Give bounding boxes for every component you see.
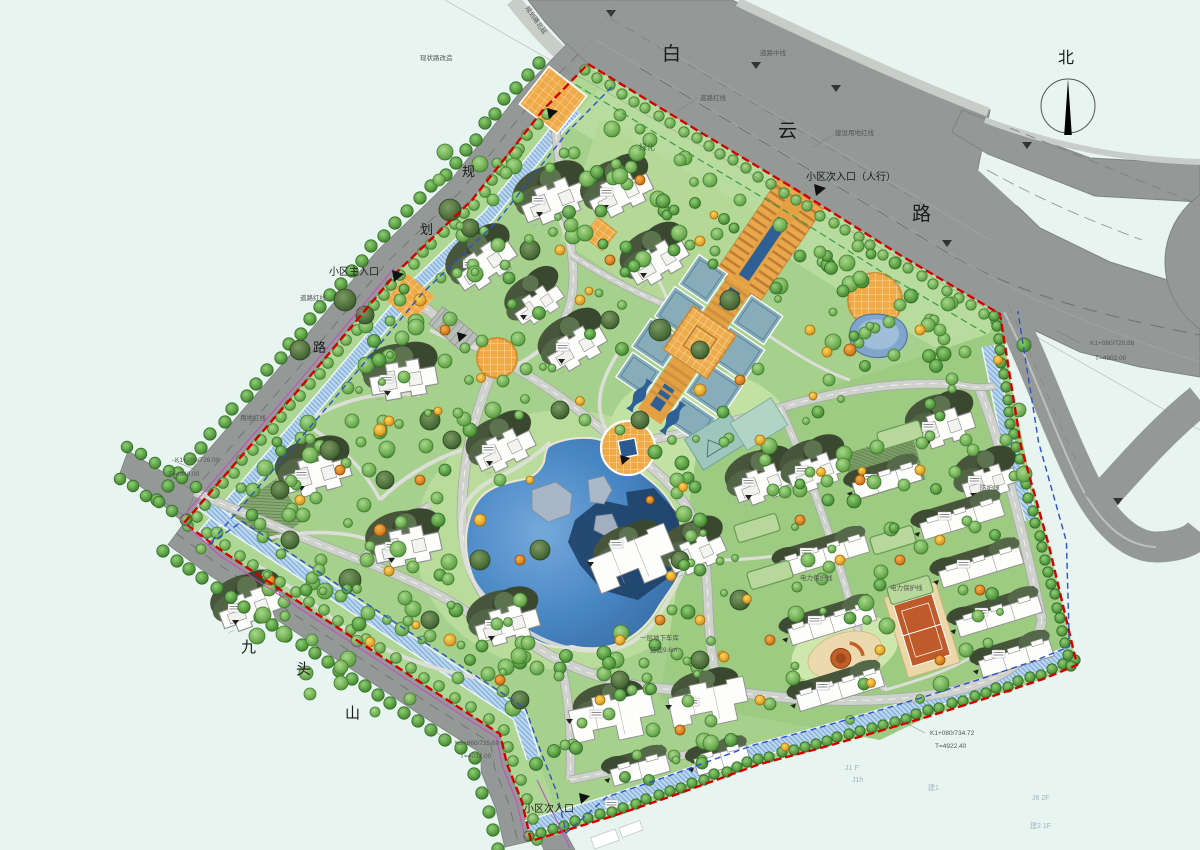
svg-text:道路中线: 道路中线 [760, 48, 787, 57]
svg-text:J1h: J1h [852, 777, 863, 784]
svg-text:现状路改造: 现状路改造 [420, 53, 453, 62]
svg-text:T=4948.00: T=4948.00 [168, 471, 200, 478]
svg-text:白: 白 [662, 43, 681, 65]
svg-text:道路红线: 道路红线 [700, 93, 727, 102]
svg-text:电力保护线: 电力保护线 [890, 583, 923, 592]
svg-text:K1+260/726.00: K1+260/726.00 [175, 457, 220, 464]
svg-text:路: 路 [313, 340, 326, 355]
svg-text:J1 F': J1 F' [845, 765, 860, 772]
svg-text:J6 2F: J6 2F [1032, 795, 1050, 802]
svg-text:防护绿: 防护绿 [980, 483, 1000, 492]
svg-text:建2 1F: 建2 1F [1030, 821, 1051, 830]
svg-text:延面9.6m: 延面9.6m [650, 645, 677, 654]
svg-text:路: 路 [912, 203, 931, 225]
svg-text:绿化: 绿化 [639, 142, 655, 152]
svg-text:一层地下车库: 一层地下车库 [640, 633, 680, 642]
svg-text:小区主入口: 小区主入口 [329, 266, 379, 278]
svg-text:北: 北 [1058, 49, 1074, 67]
svg-text:K1+080/720.88: K1+080/720.88 [1090, 340, 1135, 347]
svg-text:K1+080/734.72: K1+080/734.72 [930, 730, 975, 737]
svg-text:划: 划 [420, 222, 433, 237]
svg-text:用地红线: 用地红线 [240, 413, 267, 422]
svg-text:电力保护线: 电力保护线 [800, 573, 833, 582]
svg-text:道路红线: 道路红线 [300, 293, 327, 302]
svg-text:小区次入口（人行）: 小区次入口（人行） [806, 170, 896, 183]
svg-text:T=4922.40: T=4922.40 [935, 743, 967, 750]
svg-text:山: 山 [345, 705, 360, 722]
svg-text:建1: 建1 [928, 783, 939, 792]
svg-text:规: 规 [462, 164, 475, 179]
svg-text:九: 九 [241, 639, 256, 656]
svg-text:云: 云 [778, 121, 797, 142]
svg-text:K0+860/735.60: K0+860/735.60 [455, 740, 500, 747]
svg-text:建设用地红线: 建设用地红线 [835, 128, 875, 137]
svg-text:T=4902.00: T=4902.00 [1095, 355, 1127, 362]
svg-text:小区次入口: 小区次入口 [524, 802, 574, 815]
svg-text:T=4932.00: T=4932.00 [460, 753, 492, 760]
svg-text:头: 头 [296, 661, 311, 678]
